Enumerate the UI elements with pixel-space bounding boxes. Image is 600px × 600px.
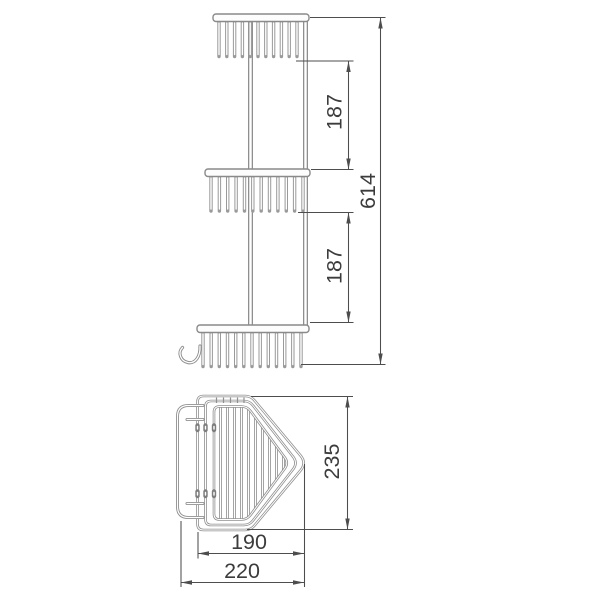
arrow-down-icon [345,519,349,530]
arrow-up-icon [346,61,350,72]
dim-depth-label: 235 [320,444,344,480]
arrow-left-icon [198,551,209,555]
dim-lower-spacing-label: 187 [323,248,347,284]
tier-2 [205,169,310,211]
dimension-drawing: 614 187 187 [0,0,600,600]
arrow-right-icon [293,551,304,555]
tier-3-wires [203,333,301,367]
dim-overall-height: 614 [301,18,386,365]
arrow-down-icon [378,354,382,365]
upper-hook-arm [187,420,203,504]
dim-overall-width-label: 220 [224,559,260,583]
wall-bracket [178,406,204,518]
tier-3 [180,325,309,367]
tier-3-rim [197,325,309,333]
arrow-down-icon [346,159,350,170]
arrow-up-icon [378,18,382,29]
bracket-hairpin [178,406,204,518]
arrow-down-icon [346,312,350,323]
inner-rim-fill [214,407,287,520]
arrow-up-icon [346,213,350,224]
arrow-up-icon [345,397,349,408]
top-view: 235 190 220 [178,396,354,587]
technical-drawing-canvas: 614 187 187 [0,0,600,600]
dim-upper-spacing-label: 187 [323,94,347,130]
tier-1 [213,14,309,57]
rim-outlines [198,396,304,530]
dim-overall-height-label: 614 [356,173,380,209]
arrow-left-icon [181,580,192,584]
tier-2-wires [211,177,303,211]
tier-2-rim [205,169,310,177]
side-view: 614 187 187 [180,14,385,367]
hanging-hook [180,346,200,363]
arrow-right-icon [293,580,304,584]
tier-1-rim [213,14,309,22]
tier-1-wires [219,22,297,57]
dim-basket-width-label: 190 [231,530,267,554]
